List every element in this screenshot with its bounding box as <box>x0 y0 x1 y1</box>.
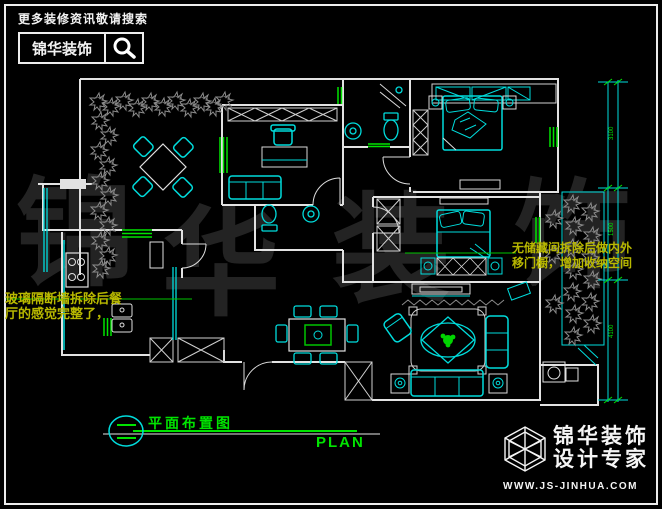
annotation-left: 玻璃隔断墙拆除后餐 厅的感觉完整了， <box>5 291 122 321</box>
shower-corner <box>380 84 406 108</box>
dining-set <box>276 306 358 364</box>
brand-name: 锦华装饰 <box>20 34 106 62</box>
footer-logo: 锦华装饰 设计专家 WWW.JS-JINHUA.COM <box>503 425 649 492</box>
dimension-value: 4100 <box>609 324 615 338</box>
study-furniture <box>229 125 307 199</box>
header: 更多装修资讯敬请搜索 锦华装饰 <box>18 10 148 64</box>
annotation-right-line1: 无储藏间拆除后做内外 <box>512 241 632 256</box>
cad-floorplan-screenshot: 锦 华 装 饰 <box>0 0 662 509</box>
annotation-right-line2: 移门橱，增加收纳空间 <box>512 256 632 271</box>
plan-title: 平面布置图 <box>148 413 233 433</box>
header-tagline: 更多装修资讯敬请搜索 <box>18 10 148 27</box>
study-walls <box>222 79 343 205</box>
annotation-left-line1: 玻璃隔断墙拆除后餐 <box>5 291 122 306</box>
brand-search-box: 锦华装饰 <box>18 32 144 64</box>
plant-on-table <box>441 334 456 348</box>
wall-block <box>60 179 86 189</box>
annotation-right: 无储藏间拆除后做内外 移门橱，增加收纳空间 <box>512 241 632 271</box>
hatched-columns <box>150 84 556 400</box>
search-icon <box>106 34 142 62</box>
door-swings <box>182 157 410 390</box>
footer-website: WWW.JS-JINHUA.COM <box>503 481 649 492</box>
dimension-value: 3100 <box>609 126 615 140</box>
annotation-left-line2: 厅的感觉完整了， <box>5 306 122 321</box>
balcony-laundry <box>543 345 598 382</box>
tv-wall-zigzag <box>402 300 504 305</box>
plan-label: PLAN <box>316 434 365 451</box>
master-bedroom-furniture <box>429 96 516 189</box>
bedroom2-furniture <box>421 198 502 275</box>
footer-brand: 锦华装饰 <box>553 425 649 448</box>
cube-logo-icon <box>503 425 547 478</box>
terrace-dining-set <box>132 136 195 199</box>
dimension-value: 1500 <box>609 222 615 236</box>
living-room-furniture <box>382 282 530 396</box>
footer-subtitle: 设计专家 <box>553 448 649 471</box>
